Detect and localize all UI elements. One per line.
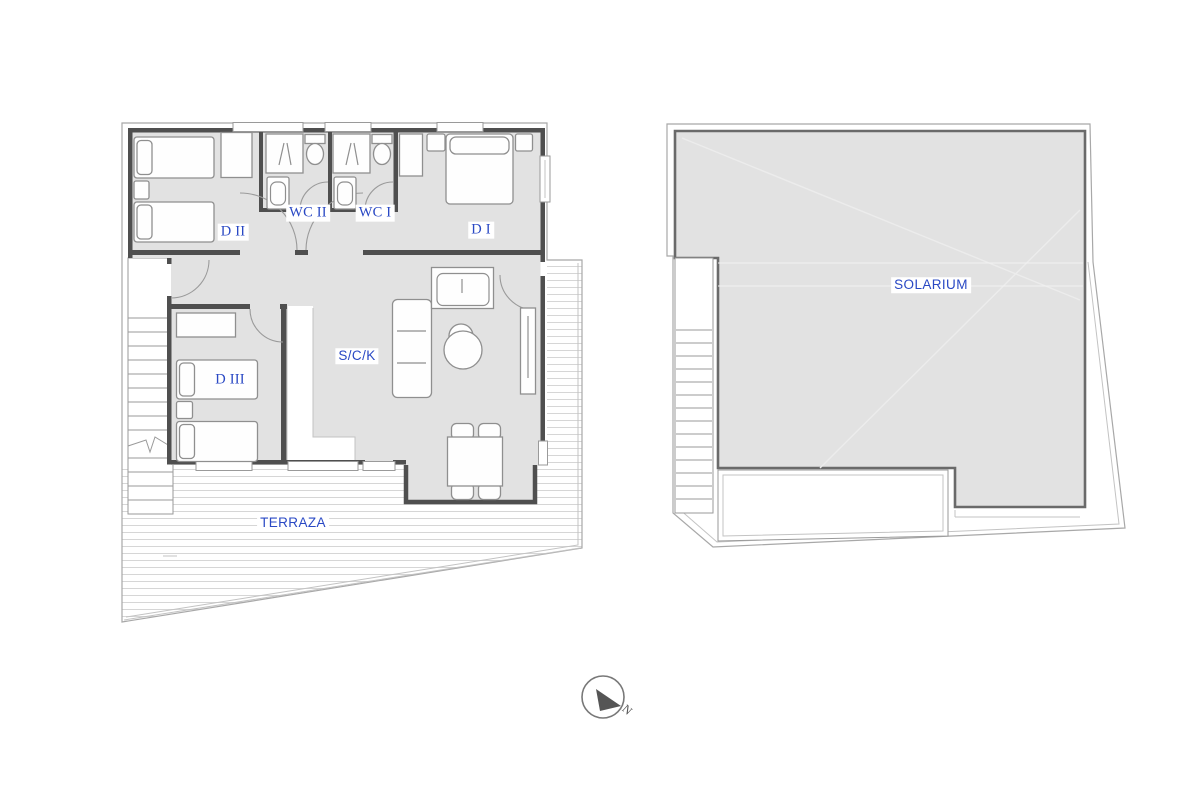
solarium-floor bbox=[675, 131, 1085, 507]
room-label-sck: S/C/K bbox=[335, 348, 378, 364]
door-threshold bbox=[363, 462, 395, 471]
bed bbox=[446, 134, 513, 204]
room-label-solarium: SOLARIUM bbox=[891, 277, 971, 293]
desk bbox=[177, 313, 236, 337]
room-label-d2: D II bbox=[218, 224, 249, 241]
floorplan-drawing bbox=[0, 0, 1200, 800]
room-label-d1: D I bbox=[468, 222, 494, 239]
toilet bbox=[372, 135, 392, 165]
door-threshold bbox=[288, 462, 358, 471]
shower bbox=[266, 134, 303, 173]
exterior-stairs bbox=[128, 258, 173, 514]
door-threshold bbox=[539, 441, 548, 465]
nightstand bbox=[427, 134, 445, 151]
toilet bbox=[305, 135, 325, 165]
shower bbox=[333, 134, 370, 173]
floorplan-page: D II WC II WC I D I D III S/C/K TERRAZA … bbox=[0, 0, 1200, 800]
room-label-d3: D III bbox=[212, 372, 248, 389]
left-plan bbox=[122, 123, 582, 623]
bed bbox=[177, 422, 258, 462]
solarium-stairs bbox=[675, 258, 713, 513]
right-plan bbox=[667, 124, 1125, 547]
window bbox=[325, 123, 371, 132]
window bbox=[540, 156, 550, 202]
nightstand bbox=[516, 134, 533, 151]
wardrobe bbox=[221, 133, 252, 178]
sliding-window bbox=[521, 308, 536, 394]
window bbox=[233, 123, 303, 132]
nightstand bbox=[177, 402, 193, 419]
window bbox=[437, 123, 483, 132]
wardrobe bbox=[400, 134, 423, 176]
nightstand bbox=[134, 181, 149, 199]
bed bbox=[134, 202, 214, 242]
bed bbox=[134, 137, 214, 178]
room-label-wc1: WC I bbox=[356, 205, 395, 222]
door-opening bbox=[541, 262, 546, 276]
sink bbox=[334, 177, 356, 209]
room-label-terraza: TERRAZA bbox=[257, 515, 329, 531]
dining-table bbox=[448, 437, 503, 486]
door-threshold bbox=[196, 462, 252, 471]
compass bbox=[582, 676, 624, 718]
room-label-wc2: WC II bbox=[286, 205, 330, 222]
